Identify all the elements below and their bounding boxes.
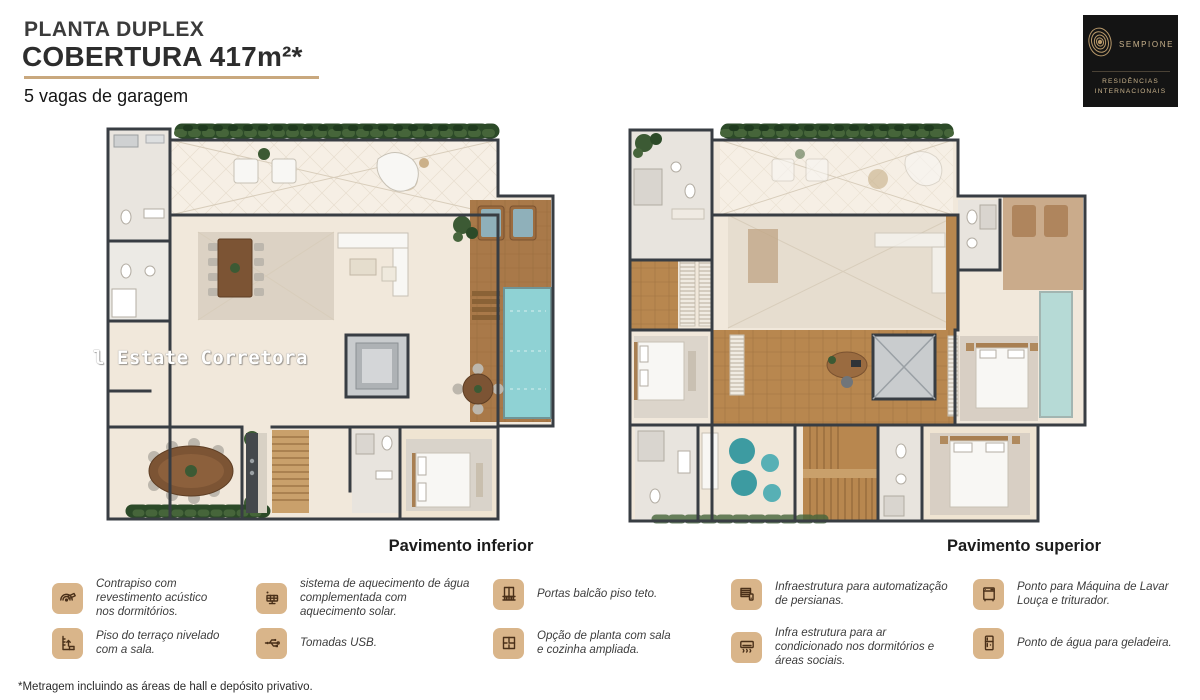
terrace-level-icon bbox=[52, 628, 83, 659]
dishwasher-icon bbox=[973, 579, 1004, 610]
air-conditioning-icon bbox=[731, 632, 762, 663]
teal-pouf bbox=[729, 438, 755, 464]
teal-pouf bbox=[763, 484, 781, 502]
sempione-spiral-icon bbox=[1087, 25, 1113, 64]
teal-pouf bbox=[761, 454, 779, 472]
floorplan-superior bbox=[620, 121, 1100, 533]
bedroom-left bbox=[634, 336, 708, 418]
hedge-top bbox=[724, 128, 950, 133]
feature-acoustic-floor: Contrapiso com revestimento acústico nos… bbox=[52, 577, 216, 619]
feature-solar-heating: sistema de aquecimento de água complemen… bbox=[256, 577, 475, 619]
feature-text: Infraestrutura para automatização de per… bbox=[775, 580, 950, 608]
logo-tagline-2: INTERNACIONAIS bbox=[1095, 87, 1166, 97]
feature-text: Opção de planta com sala e cozinha ampli… bbox=[537, 629, 677, 657]
feature-text: Tomadas USB. bbox=[300, 636, 377, 650]
feature-text: sistema de aquecimento de água complemen… bbox=[300, 577, 475, 619]
bathroom-top-right bbox=[958, 200, 1000, 270]
usb-outlet-icon bbox=[256, 628, 287, 659]
void-living-ghost bbox=[728, 215, 958, 328]
logo-tagline-1: RESIDÊNCIAS bbox=[1102, 77, 1159, 87]
teal-pouf bbox=[731, 470, 757, 496]
void-terrace-ghost bbox=[720, 140, 953, 215]
hedge-bottom bbox=[132, 511, 264, 513]
balcony-doors-icon bbox=[493, 579, 524, 610]
title-underline bbox=[24, 76, 319, 79]
brochure-page: PLANTA DUPLEX COBERTURA 417m²* 5 vagas d… bbox=[0, 0, 1200, 700]
pool bbox=[504, 288, 551, 418]
stairs bbox=[803, 425, 878, 521]
feature-floorplan-option: Opção de planta com sala e cozinha ampli… bbox=[493, 626, 677, 660]
bathroom-bottom-mid bbox=[880, 425, 922, 521]
bedroom bbox=[400, 430, 498, 519]
watermark-text: l Estate Corretora bbox=[93, 347, 308, 369]
bathroom bbox=[352, 430, 398, 513]
feature-text: Piso do terraço nivelado com a sala. bbox=[96, 629, 221, 657]
sempione-logo: SEMPIONE RESIDÊNCIAS INTERNACIONAIS bbox=[1083, 15, 1178, 107]
feature-text: Ponto para Máquina de Lavar Louça e trit… bbox=[1017, 580, 1172, 608]
feature-text: Portas balcão piso teto. bbox=[537, 587, 657, 601]
terrace bbox=[170, 140, 498, 215]
plan-kicker: PLANTA DUPLEX bbox=[24, 18, 204, 42]
logo-divider bbox=[1092, 71, 1170, 72]
feature-fridge-water: Ponto de água para geladeira. bbox=[973, 626, 1172, 660]
page-title: COBERTURA 417m²* bbox=[22, 41, 303, 73]
solar-heating-icon bbox=[256, 583, 287, 614]
garage-subtitle: 5 vagas de garagem bbox=[24, 86, 188, 107]
kitchen bbox=[246, 433, 267, 513]
feature-blinds-automation: Infraestrutura para automatização de per… bbox=[731, 577, 950, 611]
bedroom-right bbox=[948, 336, 1038, 421]
feature-terrace-level: Piso do terraço nivelado com a sala. bbox=[52, 626, 221, 660]
feature-dishwasher: Ponto para Máquina de Lavar Louça e trit… bbox=[973, 577, 1172, 611]
label-pavimento-superior: Pavimento superior bbox=[914, 537, 1134, 556]
bathroom-bottom-left bbox=[635, 425, 698, 521]
stairs bbox=[272, 430, 309, 513]
metragem-footnote: *Metragem incluindo as áreas de hall e d… bbox=[18, 681, 313, 693]
elevator bbox=[346, 335, 408, 397]
label-pavimento-inferior: Pavimento inferior bbox=[351, 537, 571, 556]
blinds-automation-icon bbox=[731, 579, 762, 610]
bedroom-bottom-right bbox=[922, 425, 1038, 521]
feature-air-conditioning: Infra estrutura para ar condicionado nos… bbox=[731, 626, 950, 668]
floorplan-inferior bbox=[106, 121, 581, 533]
floorplan-inferior-image bbox=[106, 121, 581, 528]
floorplan-option-icon bbox=[493, 628, 524, 659]
feature-text: Contrapiso com revestimento acústico nos… bbox=[96, 577, 216, 619]
fridge-water-icon bbox=[973, 628, 1004, 659]
hedge-top bbox=[178, 128, 494, 133]
logo-brand-text: SEMPIONE bbox=[1119, 40, 1174, 49]
feature-usb-outlets: Tomadas USB. bbox=[256, 626, 377, 660]
acoustic-floor-icon bbox=[52, 583, 83, 614]
floorplan-superior-image bbox=[620, 121, 1100, 528]
closet-corridor bbox=[630, 260, 711, 330]
feature-balcony-doors: Portas balcão piso teto. bbox=[493, 577, 657, 611]
suite-bathroom bbox=[630, 130, 712, 260]
elevator bbox=[873, 335, 935, 399]
feature-text: Infra estrutura para ar condicionado nos… bbox=[775, 626, 950, 668]
feature-text: Ponto de água para geladeira. bbox=[1017, 636, 1172, 650]
